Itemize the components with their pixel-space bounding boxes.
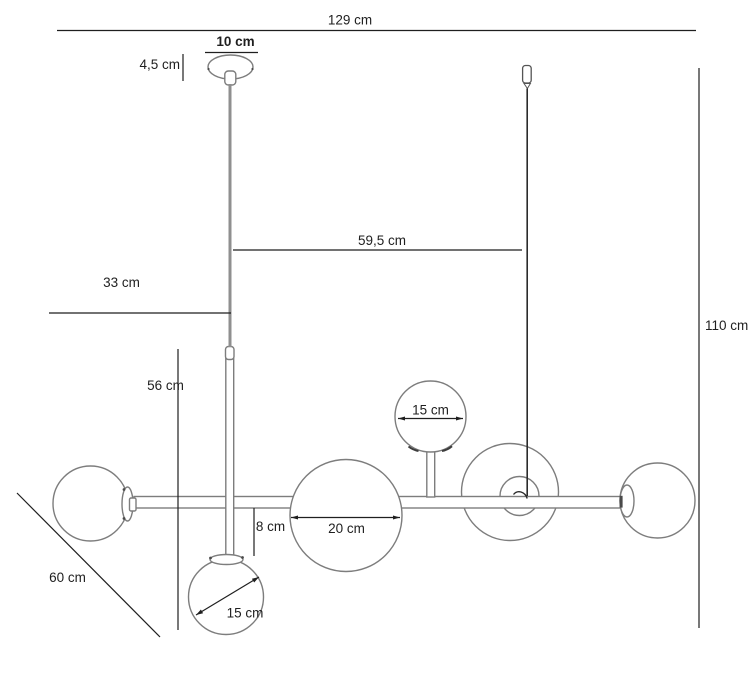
canopy-nub — [225, 71, 236, 85]
label-bottom-globe: 15 cm — [227, 606, 264, 621]
globe-large — [290, 460, 402, 572]
label-stem-height: 56 cm — [147, 378, 184, 393]
main-stem — [226, 358, 234, 556]
rod-end-mark — [620, 496, 623, 508]
cord-halo-outer-circle — [462, 444, 559, 541]
label-globe-drop: 8 cm — [256, 519, 285, 534]
main-stem-cap — [226, 347, 235, 360]
globe-left — [53, 466, 128, 541]
globe-bottom-socket — [210, 555, 243, 565]
label-canopy-height: 4,5 cm — [139, 57, 180, 72]
globe-left-socket-mark-top — [123, 488, 126, 491]
globe-bottom-socket-mark-right — [241, 556, 244, 559]
label-left-overhang: 33 cm — [103, 275, 140, 290]
lamp-dimension-drawing: 129 cm 10 cm 4,5 cm 59,5 cm 33 cm 56 cm … — [0, 0, 752, 684]
label-cord-offset: 59,5 cm — [358, 233, 406, 248]
globe-left-socket-mark-bottom — [123, 517, 126, 520]
canopy-mark-right — [251, 68, 253, 70]
label-total-height: 110 cm — [705, 318, 748, 333]
diagram-svg: 129 cm 10 cm 4,5 cm 59,5 cm 33 cm 56 cm … — [0, 0, 752, 684]
label-depth: 60 cm — [49, 570, 86, 585]
label-total-width: 129 cm — [328, 13, 372, 28]
label-canopy-diameter: 10 cm — [216, 34, 254, 49]
top-globe-stem — [427, 450, 435, 497]
canopy-mark-left — [207, 68, 209, 70]
label-top-globe: 15 cm — [412, 403, 449, 418]
label-large-globe: 20 cm — [328, 521, 365, 536]
globe-left-nub — [130, 498, 137, 511]
lamp-fixture — [53, 55, 695, 635]
cord-ceiling-cap — [523, 66, 532, 84]
globe-bottom-socket-mark-left — [209, 557, 212, 560]
cord-cap-taper — [524, 84, 530, 89]
